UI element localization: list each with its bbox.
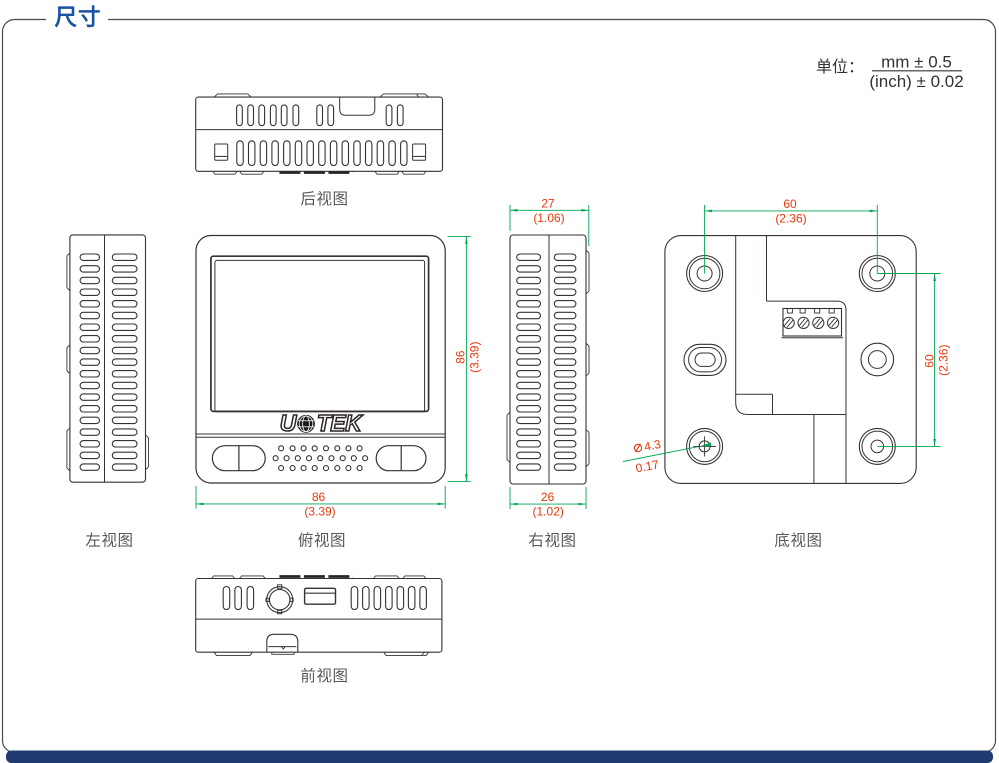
svg-text:左视图: 左视图 (85, 532, 133, 550)
svg-text:86: 86 (453, 350, 467, 364)
svg-text:(2.36): (2.36) (775, 211, 806, 225)
svg-text:26: 26 (541, 490, 555, 504)
svg-text:后视图: 后视图 (300, 190, 348, 208)
svg-text:(2.36): (2.36) (937, 345, 951, 376)
svg-text:底视图: 底视图 (774, 532, 822, 550)
svg-text:(3.39): (3.39) (304, 504, 335, 518)
svg-text:(1.02): (1.02) (533, 505, 564, 519)
svg-text:mm ± 0.5: mm ± 0.5 (881, 53, 952, 72)
svg-text:右视图: 右视图 (528, 532, 576, 550)
svg-text:单位：: 单位： (816, 58, 864, 76)
svg-text:(3.39): (3.39) (468, 342, 482, 373)
svg-text:U: U (280, 410, 298, 436)
svg-text:TEK: TEK (317, 410, 363, 436)
svg-text:俯视图: 俯视图 (298, 532, 346, 550)
svg-text:60: 60 (923, 354, 937, 368)
svg-text:86: 86 (312, 490, 326, 504)
svg-text:前视图: 前视图 (300, 667, 348, 685)
svg-text:4.3: 4.3 (643, 437, 662, 454)
svg-text:0.17: 0.17 (634, 457, 660, 475)
svg-text:(1.06): (1.06) (533, 211, 564, 225)
svg-text:27: 27 (541, 196, 555, 210)
svg-text:尺寸: 尺寸 (54, 5, 101, 30)
svg-text:60: 60 (783, 197, 797, 211)
svg-text:(inch) ± 0.02: (inch) ± 0.02 (869, 72, 963, 91)
